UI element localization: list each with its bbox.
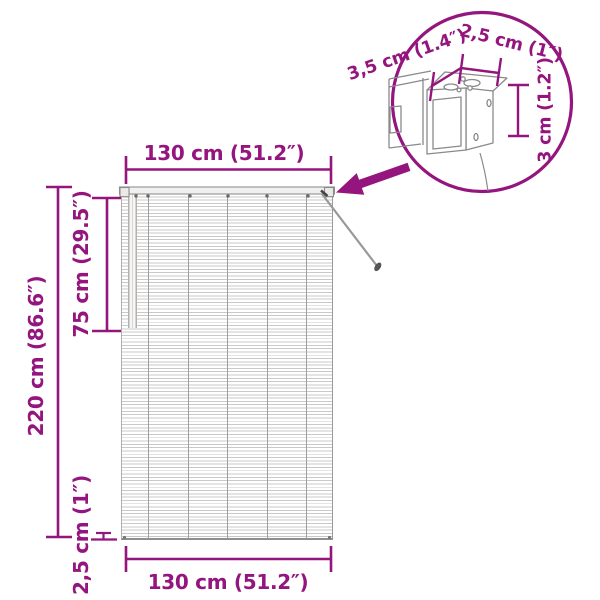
blind-string xyxy=(148,194,149,538)
bracket-height-label: 3 cm (1.2″) xyxy=(537,57,555,163)
blind-string xyxy=(188,194,189,538)
dim-width-bottom-label: 130 cm (51.2″) xyxy=(148,572,309,592)
blind-string xyxy=(267,194,268,538)
dim-height-total-label: 220 cm (86.6″) xyxy=(26,276,46,437)
bracket-depth-label: 3,5 cm (1.4″) xyxy=(346,28,469,85)
blind-body xyxy=(121,194,333,540)
dimension-bottom-rail xyxy=(91,533,117,540)
headrail-profile xyxy=(389,71,431,148)
dim-bottom-rail-label: 2,5 cm (1″) xyxy=(71,475,91,595)
callout-arrow-icon xyxy=(336,163,410,195)
lift-cord xyxy=(128,194,137,328)
dim-height-partial-label: 75 cm (29.5″) xyxy=(71,190,91,337)
bracket-detail-drawing xyxy=(389,71,507,191)
product-dimension-diagram: 130 cm (51.2″) 75 cm (29.5″) 220 cm (86.… xyxy=(0,0,600,600)
dimension-height-partial xyxy=(92,198,121,331)
wand-cord-detail xyxy=(480,153,488,191)
bracket-dimension-lines xyxy=(430,54,529,136)
dimension-width-bottom xyxy=(126,546,331,572)
bracket-box xyxy=(427,72,507,154)
blind-string xyxy=(306,194,307,538)
blind-string xyxy=(227,194,228,538)
dim-width-top-label: 130 cm (51.2″) xyxy=(144,143,305,163)
